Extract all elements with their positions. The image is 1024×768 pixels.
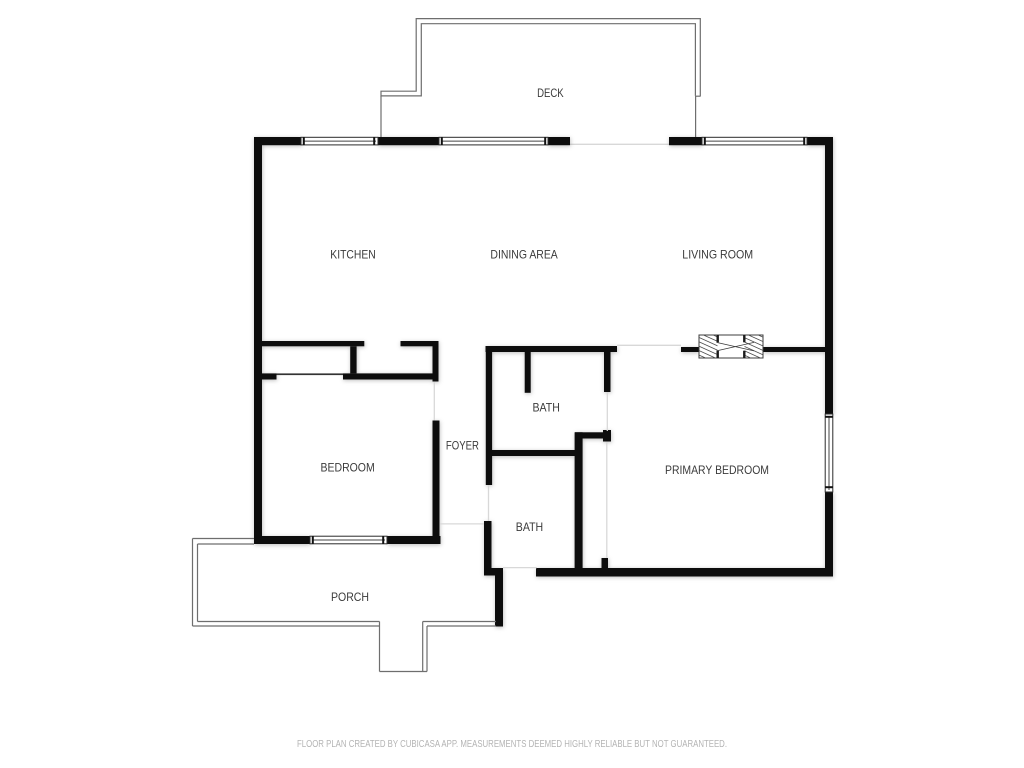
svg-text:BATH: BATH bbox=[533, 401, 560, 415]
svg-text:LIVING ROOM: LIVING ROOM bbox=[682, 248, 753, 262]
svg-text:KITCHEN: KITCHEN bbox=[330, 248, 375, 262]
svg-text:PRIMARY BEDROOM: PRIMARY BEDROOM bbox=[665, 463, 769, 477]
svg-text:DECK: DECK bbox=[537, 86, 564, 100]
svg-text:PORCH: PORCH bbox=[331, 590, 369, 604]
svg-text:FLOOR PLAN CREATED BY CUBICASA: FLOOR PLAN CREATED BY CUBICASA APP. MEAS… bbox=[297, 739, 727, 750]
svg-text:BATH: BATH bbox=[516, 520, 543, 534]
svg-text:FOYER: FOYER bbox=[446, 438, 479, 452]
svg-text:BEDROOM: BEDROOM bbox=[321, 461, 375, 475]
svg-text:DINING AREA: DINING AREA bbox=[490, 248, 557, 262]
